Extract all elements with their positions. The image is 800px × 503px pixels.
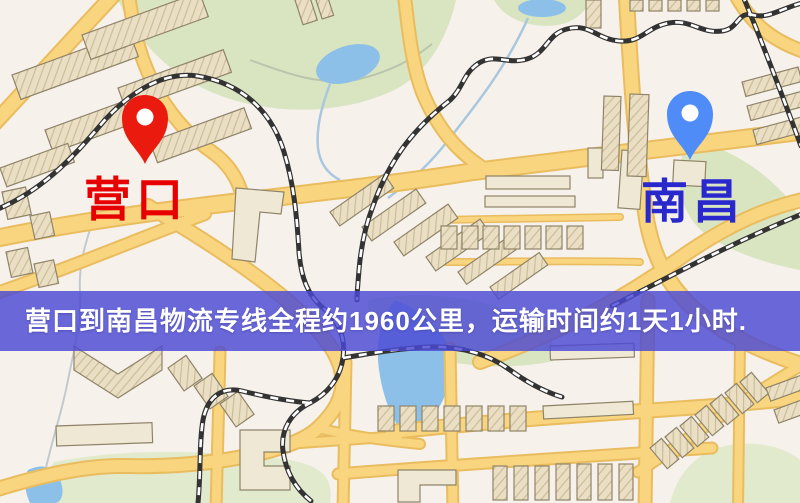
destination-marker[interactable] <box>665 89 715 166</box>
route-info-banner: 营口到南昌物流专线全程约1960公里，运输时间约1天1小时. <box>0 291 800 351</box>
red-map-pin-icon <box>122 95 168 164</box>
route-info-text: 营口到南昌物流专线全程约1960公里，运输时间约1天1小时. <box>0 291 800 351</box>
destination-city-label: 南昌 <box>641 178 745 225</box>
blue-map-pin-icon <box>667 91 713 160</box>
origin-city-label: 营口 <box>84 176 188 223</box>
origin-marker[interactable] <box>120 93 170 170</box>
logistics-route-map: 营口 南昌 营口到南昌物流专线全程约1960公里，运输时间约1天1小时. <box>0 0 800 503</box>
pin-hole <box>137 109 154 126</box>
pin-hole <box>682 105 699 122</box>
map-canvas[interactable] <box>0 0 800 503</box>
